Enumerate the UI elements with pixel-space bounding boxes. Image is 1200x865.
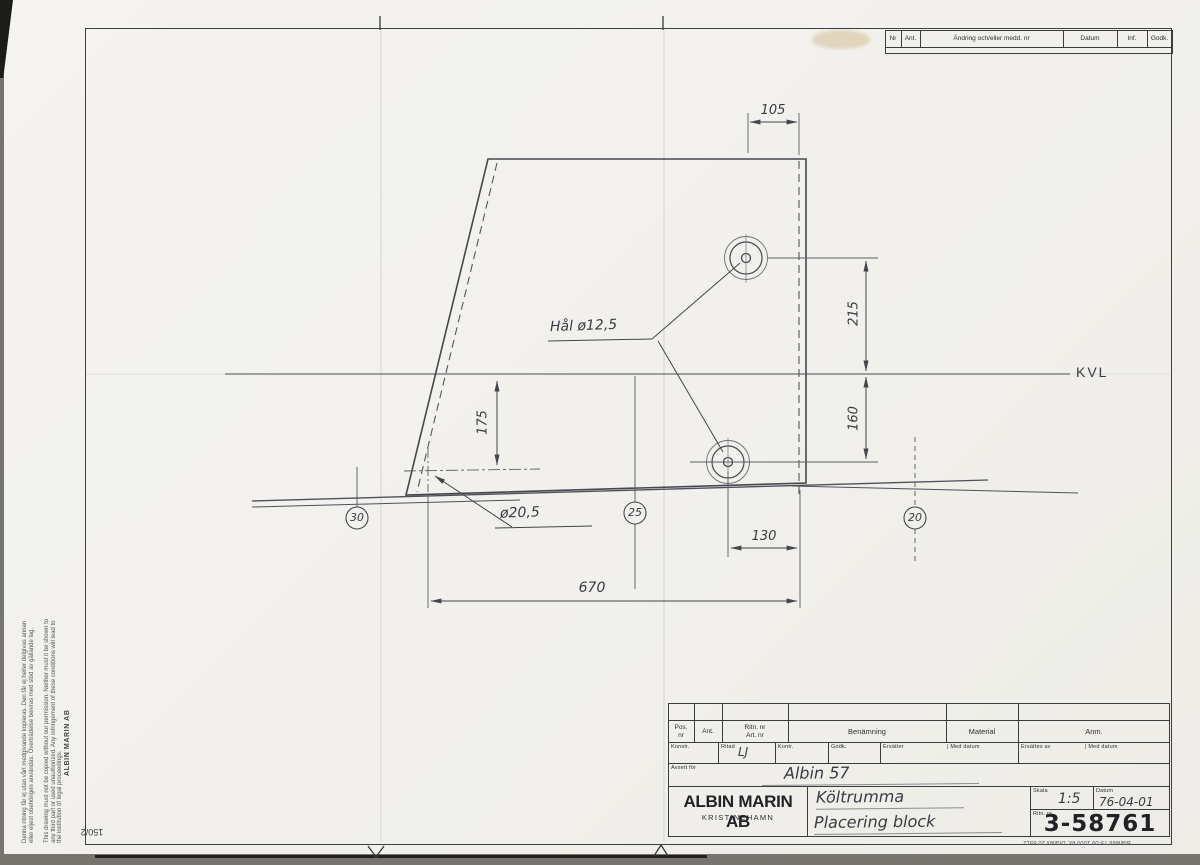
ritn-line2: Art. nr: [746, 732, 764, 740]
kvl-label: KVL: [1076, 364, 1108, 380]
revision-col-ant: Ant.: [901, 30, 920, 47]
dim-130-label: 130: [740, 529, 788, 544]
fold-marks: [368, 16, 668, 857]
keel-hole-diameter-note: ø20,5: [500, 504, 540, 521]
station-30-badge: 30: [345, 511, 369, 524]
field-avsett-for: Avsett för: [671, 765, 696, 771]
station-25-badge: 25: [623, 506, 647, 519]
datum-value: 76-04-01: [1099, 795, 1153, 809]
benamning-value-line1: Költrumma: [816, 786, 964, 810]
col-header-ritn-nr: Ritn. nr Art. nr: [722, 721, 788, 742]
hole-diameter-note: Hål ø12,5: [550, 317, 618, 335]
dimension-lines: [431, 122, 866, 601]
revision-col-nr: Nr: [885, 30, 901, 47]
revision-col-andring: Ändring och/eller medd. nr: [920, 30, 1063, 47]
col-header-ant: Ant.: [694, 721, 722, 742]
form-footer: Blankett 75-09 1000 ex. Draflex 20 6512: [988, 839, 1166, 845]
station-20-badge: 20: [903, 511, 927, 524]
dim-215-label: 215: [847, 294, 862, 334]
pos-line2: nr: [678, 732, 684, 740]
revision-col-inf: Inf.: [1117, 30, 1147, 47]
field-ersattes-av: Ersättes av: [1021, 744, 1051, 750]
centerlines: [404, 113, 878, 608]
field-godk: Godk.: [831, 744, 847, 750]
col-header-anm: Anm.: [1018, 721, 1170, 742]
field-ritad: Ritad: [721, 744, 735, 750]
field-ersatter: Ersätter: [883, 744, 904, 750]
drawing-number: 3-58761: [1032, 811, 1168, 837]
col-header-benamning: Benämning: [788, 721, 946, 742]
field-skala: Skala: [1033, 788, 1048, 794]
pos-line1: Pos.: [674, 724, 687, 732]
bolt-hole-upper: [725, 234, 768, 283]
field-med-datum-1: | Med datum: [947, 744, 980, 750]
ritad-signature: LJ: [738, 745, 748, 759]
field-kontr: Kontr.: [778, 744, 794, 750]
skala-value: 1:5: [1058, 791, 1081, 807]
sheet-number: 150/2: [72, 827, 112, 837]
ritn-line1: Ritn. nr: [745, 724, 766, 732]
field-med-datum-2: | Med datum: [1085, 744, 1118, 750]
col-header-pos-nr: Pos. nr: [668, 721, 694, 742]
dim-105-label: 105: [750, 103, 796, 118]
company-city: KRISTINEHAMN: [672, 813, 804, 822]
station-lines: [346, 376, 926, 589]
revision-col-datum: Datum: [1063, 30, 1117, 47]
revision-col-godk: Godk.: [1147, 30, 1172, 47]
dim-160-label: 160: [847, 399, 862, 439]
legal-notice-swedish: Denna ritning får ej utan vårt medgivand…: [22, 615, 35, 843]
scanned-sheet: 105 215 160 175 130 670 Hål ø12,5 ø20,5 …: [0, 0, 1200, 865]
margin-company-name: ALBIN MARIN AB: [64, 664, 71, 776]
dim-670-label: 670: [566, 580, 618, 596]
col-header-material: Material: [946, 721, 1018, 742]
company-name: ALBIN MARIN AB: [672, 792, 804, 832]
field-datum: Datum: [1096, 788, 1113, 794]
dim-175-label: 175: [476, 403, 491, 443]
field-konstr: Konstr.: [671, 744, 690, 750]
hull-lines: [252, 480, 1078, 507]
avsett-for-value: Albin 57: [762, 762, 979, 786]
benamning-value-line2: Placering block: [814, 811, 1002, 835]
legal-notice-english: This drawing must not be copied without …: [44, 615, 64, 843]
